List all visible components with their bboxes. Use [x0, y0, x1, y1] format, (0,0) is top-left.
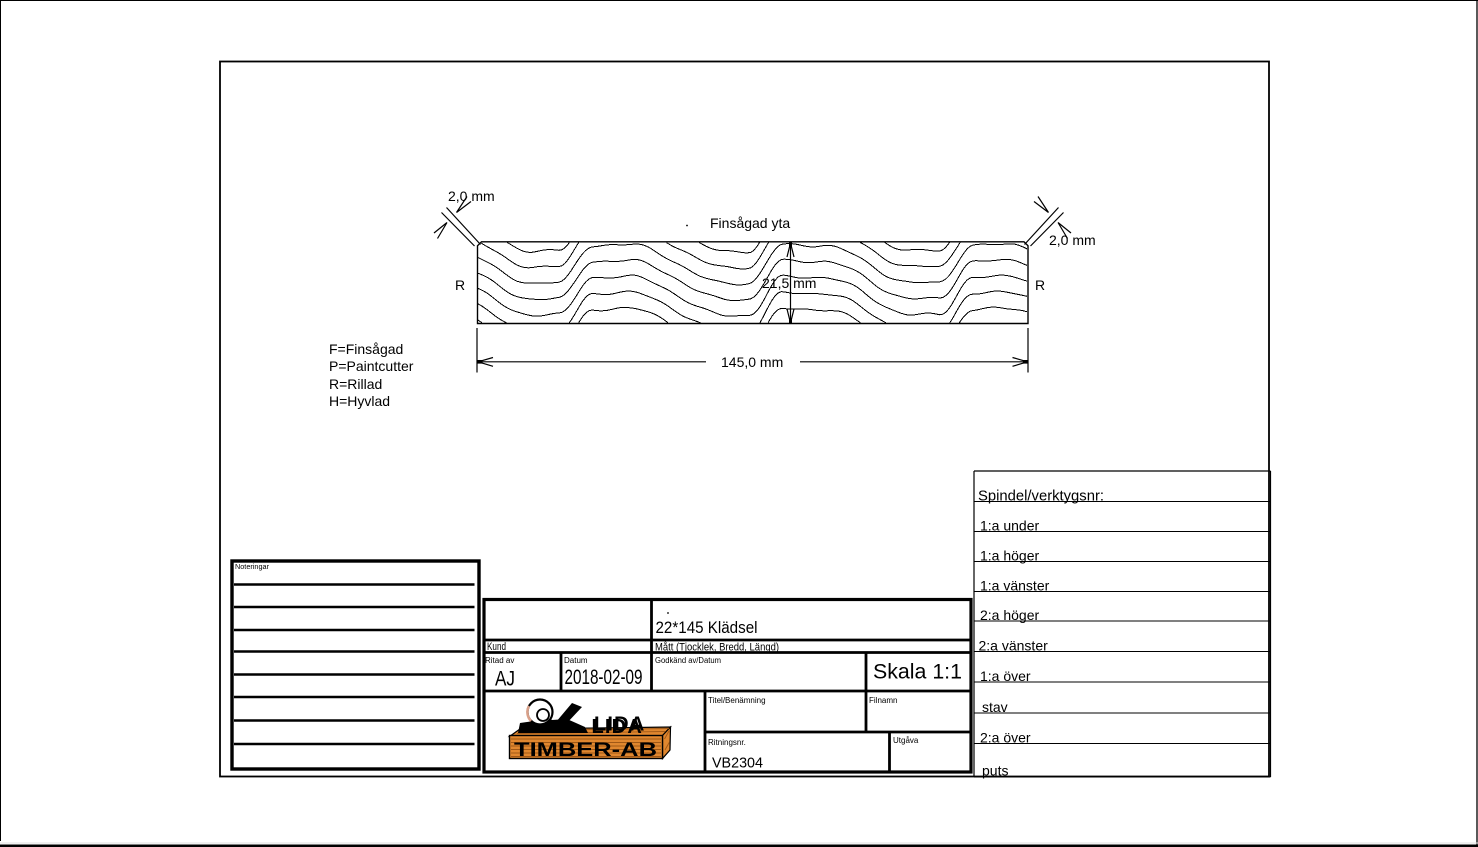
- svg-text:Titel/Benämning: Titel/Benämning: [708, 696, 766, 705]
- svg-text:R: R: [1035, 277, 1045, 293]
- svg-text:Filnamn: Filnamn: [869, 696, 897, 705]
- svg-text:Spindel/verktygsnr:: Spindel/verktygsnr:: [978, 489, 1104, 505]
- svg-text:Utgåva: Utgåva: [893, 736, 919, 745]
- svg-text:R: R: [455, 277, 465, 293]
- svg-text:2018-02-09: 2018-02-09: [565, 666, 643, 689]
- svg-text:145,0 mm: 145,0 mm: [721, 354, 783, 370]
- svg-text:2:a vänster: 2:a vänster: [979, 638, 1049, 654]
- svg-text:Datum: Datum: [564, 656, 588, 665]
- svg-text:H=Hyvlad: H=Hyvlad: [329, 393, 390, 409]
- svg-text:P=Paintcutter: P=Paintcutter: [329, 358, 414, 374]
- svg-text:2:a över: 2:a över: [980, 730, 1031, 746]
- svg-text:Ritningsnr.: Ritningsnr.: [708, 738, 746, 747]
- svg-text:Noteringar: Noteringar: [235, 564, 270, 571]
- svg-text:TIMBER-AB: TIMBER-AB: [514, 740, 657, 761]
- svg-text:F=Finsågad: F=Finsågad: [329, 341, 403, 357]
- svg-text:LIDA: LIDA: [592, 716, 643, 738]
- svg-text:1:a under: 1:a under: [980, 518, 1039, 534]
- svg-text:Mått (Tjocklek, Bredd, Längd): Mått (Tjocklek, Bredd, Längd): [655, 642, 779, 654]
- svg-text:22*145 Klädsel: 22*145 Klädsel: [656, 618, 758, 637]
- svg-text:Godkänd av/Datum: Godkänd av/Datum: [655, 656, 721, 665]
- svg-text:Skala 1:1: Skala 1:1: [873, 660, 962, 684]
- svg-text:Finsågad yta: Finsågad yta: [710, 215, 790, 231]
- svg-text:stav: stav: [982, 699, 1008, 715]
- svg-text:Kund: Kund: [487, 641, 506, 653]
- svg-text:R=Rillad: R=Rillad: [329, 376, 382, 392]
- svg-text:2,0 mm: 2,0 mm: [448, 188, 495, 204]
- svg-text:Ritad av: Ritad av: [485, 656, 514, 665]
- svg-text:1:a vänster: 1:a vänster: [980, 578, 1050, 594]
- svg-text:AJ: AJ: [495, 668, 515, 691]
- svg-text:2,0 mm: 2,0 mm: [1049, 232, 1096, 248]
- svg-text:VB2304: VB2304: [712, 755, 763, 772]
- svg-text:21,5 mm: 21,5 mm: [762, 275, 816, 291]
- svg-text:1:a höger: 1:a höger: [980, 548, 1039, 564]
- svg-text:1:a över: 1:a över: [980, 668, 1031, 684]
- svg-text:puts: puts: [982, 763, 1008, 779]
- svg-text:2:a höger: 2:a höger: [980, 607, 1039, 623]
